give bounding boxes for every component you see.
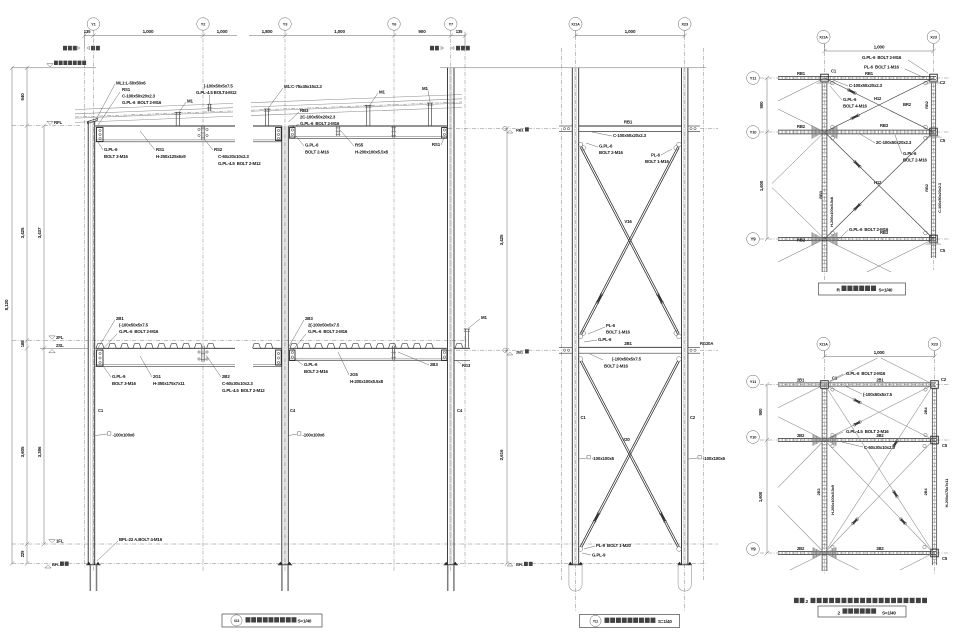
- svg-text:C4: C4: [457, 408, 463, 413]
- svg-text:X23: X23: [681, 22, 689, 27]
- svg-text:BOLT 3-M16: BOLT 3-M16: [104, 154, 128, 159]
- svg-text:X21A: X21A: [819, 36, 828, 40]
- svg-text:(-100x50x5x7.5: (-100x50x5x7.5: [612, 357, 642, 362]
- svg-text:H12: H12: [874, 96, 882, 101]
- svg-text:C-60x20x10x2.3: C-60x20x10x2.3: [218, 154, 249, 159]
- svg-text:M1: M1: [379, 90, 386, 95]
- svg-text:H-200x100x5.5x8: H-200x100x5.5x8: [350, 379, 384, 384]
- svg-text:V16: V16: [624, 219, 632, 224]
- svg-text:2B4: 2B4: [923, 488, 928, 496]
- svg-text:2(-100x50x5x7.5: 2(-100x50x5x7.5: [308, 323, 340, 328]
- svg-text:RFL: RFL: [54, 120, 63, 125]
- svg-text:M1: M1: [187, 99, 194, 104]
- svg-text:H-200x100x5.5x9: H-200x100x5.5x9: [830, 484, 835, 515]
- svg-text:1,000: 1,000: [334, 29, 345, 34]
- svg-text:BOLT 2-M16: BOLT 2-M16: [903, 158, 927, 163]
- svg-text:BOLT 1-M16: BOLT 1-M16: [645, 159, 669, 164]
- svg-text:2B1: 2B1: [624, 341, 632, 346]
- svg-text:3,425: 3,425: [499, 234, 504, 245]
- svg-text:X21A: X21A: [819, 343, 828, 347]
- svg-text:2G1: 2G1: [153, 374, 162, 379]
- svg-text:G.PL-4.5 BOLT4-M12: G.PL-4.5 BOLT4-M12: [196, 90, 237, 95]
- svg-text:900: 900: [418, 29, 426, 34]
- svg-text:X23: X23: [931, 342, 939, 347]
- svg-text:RB2: RB2: [924, 183, 929, 191]
- svg-text:X23: X23: [930, 35, 938, 40]
- svg-text:1,800: 1,800: [262, 29, 273, 34]
- svg-text:135: 135: [456, 29, 463, 34]
- svg-text:1,000: 1,000: [874, 350, 885, 355]
- svg-text:1,000: 1,000: [217, 29, 228, 34]
- svg-text:BPL: BPL: [516, 562, 524, 567]
- svg-text:G.PL-9: G.PL-9: [592, 553, 606, 558]
- svg-text:-100x100x6: -100x100x6: [113, 432, 136, 437]
- svg-text:RB3: RB3: [300, 108, 309, 113]
- svg-text:1,600: 1,600: [758, 491, 763, 502]
- svg-text:X13: X13: [234, 619, 240, 623]
- svg-text:G.PL-6: G.PL-6: [304, 362, 318, 367]
- svg-text:(-100x50x5x7.5: (-100x50x5x7.5: [119, 323, 149, 328]
- svg-text:Y7: Y7: [449, 22, 453, 27]
- svg-text:1,000: 1,000: [625, 29, 636, 34]
- svg-text:C-100x50x20x2.3: C-100x50x20x2.3: [122, 94, 156, 99]
- svg-text:H-200x100x5.5x8: H-200x100x5.5x8: [829, 196, 834, 227]
- svg-text:8,120: 8,120: [4, 299, 9, 310]
- svg-text:M1: M1: [422, 86, 429, 91]
- svg-text:C2: C2: [940, 80, 946, 85]
- svg-text:C2: C2: [941, 377, 947, 382]
- svg-text:RB1: RB1: [516, 128, 524, 133]
- svg-text:2C-100x50x20x2.3: 2C-100x50x20x2.3: [300, 115, 336, 120]
- svg-text:RB2: RB2: [797, 238, 806, 243]
- svg-text:V20: V20: [622, 437, 630, 442]
- svg-text:G.PL-4.5 BOLT 2-M12: G.PL-4.5 BOLT 2-M12: [222, 388, 265, 393]
- svg-text:900: 900: [758, 408, 763, 416]
- svg-text:2B1: 2B1: [116, 316, 124, 321]
- svg-text:Y11: Y11: [593, 620, 599, 624]
- svg-text:(-100x50x5x7.5: (-100x50x5x7.5: [863, 392, 893, 397]
- svg-text:G.PL-6 BOLT 2-M16: G.PL-6 BOLT 2-M16: [846, 371, 886, 376]
- svg-text:2B2: 2B2: [222, 374, 230, 379]
- svg-text:X21A: X21A: [571, 23, 580, 27]
- svg-text:C-60x30x10x2.3: C-60x30x10x2.3: [222, 381, 253, 386]
- svg-text:C1: C1: [832, 376, 838, 381]
- svg-text:3,605: 3,605: [20, 446, 25, 457]
- svg-text:RS1: RS1: [432, 142, 441, 147]
- svg-text:G.PL-6 BOLT 2-M16: G.PL-6 BOLT 2-M16: [122, 100, 162, 105]
- svg-text:C1: C1: [581, 415, 587, 420]
- svg-text:2B1: 2B1: [516, 350, 524, 355]
- svg-text:3,437: 3,437: [37, 227, 42, 238]
- svg-text:G.PL-9: G.PL-9: [112, 374, 126, 379]
- svg-text:Y10: Y10: [750, 435, 758, 440]
- svg-text:RS1: RS1: [122, 87, 131, 92]
- svg-text:BOLT 1-M16: BOLT 1-M16: [606, 330, 630, 335]
- svg-text:RB1: RB1: [865, 71, 874, 76]
- svg-text:C2: C2: [690, 415, 696, 420]
- svg-text:H-200x100x5.5x8: H-200x100x5.5x8: [355, 150, 389, 155]
- svg-text:BOLT 2-M16: BOLT 2-M16: [599, 150, 623, 155]
- svg-text:1FL: 1FL: [56, 539, 64, 544]
- svg-text:-100x100x6: -100x100x6: [303, 432, 326, 437]
- svg-text:2B2: 2B2: [797, 546, 805, 551]
- svg-text:C-100x50x20x2.3: C-100x50x20x2.3: [849, 83, 883, 88]
- svg-text:188: 188: [20, 340, 25, 347]
- svg-text:S=1/40: S=1/40: [658, 619, 672, 624]
- svg-text:-100x100x6: -100x100x6: [592, 456, 615, 461]
- svg-text:H-200x175x7x11: H-200x175x7x11: [944, 478, 949, 508]
- svg-text:C-100x50x20x2.3: C-100x50x20x2.3: [613, 133, 647, 138]
- svg-text:RB1: RB1: [624, 120, 633, 125]
- svg-text:229: 229: [20, 550, 25, 557]
- svg-text:BOLT 3-M16: BOLT 3-M16: [112, 381, 136, 386]
- svg-text:G.PL-6 BOLT 2-M16: G.PL-6 BOLT 2-M16: [308, 329, 348, 334]
- svg-text:RS5: RS5: [355, 143, 364, 148]
- svg-text:RB3: RB3: [818, 190, 823, 198]
- svg-text:2FL: 2FL: [56, 335, 64, 340]
- svg-text:BOLT 2-M16: BOLT 2-M16: [604, 364, 628, 369]
- svg-text:2B2: 2B2: [797, 433, 805, 438]
- svg-text:RS1: RS1: [156, 147, 165, 152]
- svg-text:G.PL-4.5 BOLT 2-M16: G.PL-4.5 BOLT 2-M16: [846, 429, 889, 434]
- svg-text:G.PL-6: G.PL-6: [599, 144, 613, 149]
- svg-text:2B3: 2B3: [816, 488, 821, 496]
- svg-text:H-350x175x7x11: H-350x175x7x11: [153, 381, 185, 386]
- svg-text:2SL: 2SL: [56, 343, 64, 348]
- svg-text:2B2: 2B2: [876, 546, 884, 551]
- svg-text:Y9: Y9: [750, 547, 756, 552]
- svg-text:C4: C4: [290, 408, 296, 413]
- svg-text:2B1: 2B1: [876, 378, 884, 383]
- svg-text:C-60x30x10x2.3: C-60x30x10x2.3: [864, 445, 895, 450]
- svg-text:S=1/40: S=1/40: [298, 619, 312, 624]
- svg-text:2G5: 2G5: [350, 372, 359, 377]
- svg-text:2C-100x50x20x2.3: 2C-100x50x20x2.3: [876, 140, 912, 145]
- svg-text:1,000: 1,000: [143, 29, 154, 34]
- svg-text:BPL: BPL: [52, 562, 60, 567]
- svg-text:PL-6: PL-6: [651, 153, 661, 158]
- svg-text:G.PL-6: G.PL-6: [843, 97, 857, 102]
- svg-text:2B1: 2B1: [797, 378, 805, 383]
- svg-text:2B3: 2B3: [430, 362, 438, 367]
- svg-text:Y11: Y11: [750, 379, 757, 384]
- svg-text:C5: C5: [940, 138, 946, 143]
- svg-text:G.PL-4.5 BOLT 2-M12: G.PL-4.5 BOLT 2-M12: [218, 161, 261, 166]
- svg-text:Y10: Y10: [750, 130, 758, 135]
- svg-text:C5: C5: [940, 248, 946, 253]
- svg-text:M1:C-75x45x15x2.3: M1:C-75x45x15x2.3: [284, 84, 322, 89]
- svg-text:RG3: RG3: [462, 363, 471, 368]
- svg-text:S=1/40: S=1/40: [882, 610, 896, 615]
- svg-text:G.PL-6 BOLT 2-M16: G.PL-6 BOLT 2-M16: [862, 55, 902, 60]
- svg-text:BOLT 2-M16: BOLT 2-M16: [304, 369, 328, 374]
- svg-text:G.PL-6 BOLT 2-M16: G.PL-6 BOLT 2-M16: [300, 121, 340, 126]
- svg-text:135: 135: [84, 29, 91, 34]
- svg-text:900: 900: [759, 101, 764, 109]
- svg-text:ML1:L-50x50x6: ML1:L-50x50x6: [116, 81, 146, 86]
- svg-text:RG20A: RG20A: [700, 341, 713, 346]
- svg-text:|-100x50x5x7.5: |-100x50x5x7.5: [204, 84, 233, 89]
- svg-text:Y9: Y9: [750, 237, 756, 242]
- svg-text:3,386: 3,386: [37, 446, 42, 457]
- svg-text:M1: M1: [481, 315, 488, 320]
- svg-text:940: 940: [20, 93, 25, 101]
- svg-text:1,000: 1,000: [874, 45, 885, 50]
- svg-text:G.PL-6: G.PL-6: [104, 147, 118, 152]
- svg-text:BOLT 2-M16: BOLT 2-M16: [305, 150, 329, 155]
- svg-text:RB3: RB3: [880, 123, 889, 128]
- svg-text:C1: C1: [98, 408, 104, 413]
- svg-text:G.PL-6 BOLT 2-M16: G.PL-6 BOLT 2-M16: [849, 227, 889, 232]
- svg-text:C-100x50x20x2.3: C-100x50x20x2.3: [937, 182, 942, 213]
- svg-text:2,616: 2,616: [499, 449, 504, 460]
- svg-text:C5: C5: [942, 443, 948, 448]
- svg-text:G.PL-6: G.PL-6: [598, 337, 612, 342]
- svg-text:G.PL-6: G.PL-6: [305, 143, 319, 148]
- svg-text:RB1: RB1: [797, 71, 806, 76]
- svg-text:RB2: RB2: [924, 100, 929, 108]
- svg-text:PL-9 BOLT 1-M20: PL-9 BOLT 1-M20: [596, 543, 632, 548]
- svg-text:BOLT 4-M16: BOLT 4-M16: [843, 104, 867, 109]
- svg-text:C1: C1: [831, 69, 837, 74]
- svg-text:PL-6 BOLT 1-M16: PL-6 BOLT 1-M16: [864, 65, 900, 70]
- svg-text:Y11: Y11: [750, 76, 757, 81]
- svg-text:C5: C5: [942, 556, 948, 561]
- svg-text:3,425: 3,425: [20, 227, 25, 238]
- svg-text:2B3: 2B3: [305, 316, 313, 321]
- svg-text:RS2: RS2: [214, 147, 223, 152]
- svg-text:S=1/40: S=1/40: [879, 287, 893, 292]
- svg-text:1,600: 1,600: [759, 180, 764, 191]
- svg-text:G.PL-6 BOLT 2-M16: G.PL-6 BOLT 2-M16: [119, 329, 159, 334]
- svg-text:BR2: BR2: [903, 102, 912, 107]
- svg-text:BPL-22 A.BOLT 4-M16: BPL-22 A.BOLT 4-M16: [119, 537, 163, 542]
- svg-text:-100x100x6: -100x100x6: [703, 456, 726, 461]
- svg-text:2B4: 2B4: [923, 407, 928, 415]
- svg-text:G.PL-6: G.PL-6: [903, 151, 917, 156]
- svg-text:H12: H12: [874, 180, 882, 185]
- svg-text:PL-6: PL-6: [606, 323, 616, 328]
- svg-text:RB2: RB2: [797, 124, 806, 129]
- svg-text:H-250x125x6x9: H-250x125x6x9: [156, 154, 186, 159]
